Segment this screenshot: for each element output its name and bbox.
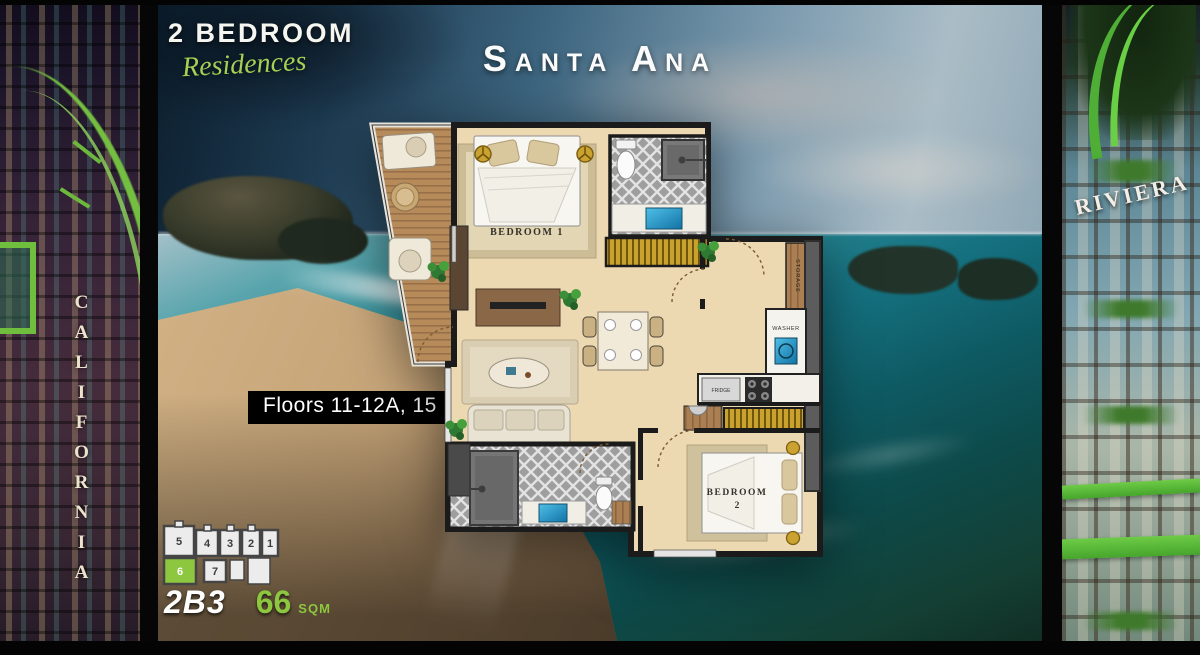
balcony-hedge: [1062, 612, 1200, 630]
keyplan-unit-label: 1: [267, 538, 273, 550]
frame-bar: [0, 641, 1200, 655]
tower-name-california: CALIFORNIA: [70, 292, 92, 637]
rock: [848, 246, 958, 294]
kitchen: FRIDGE: [698, 374, 820, 406]
fridge-label: FRIDGE: [712, 388, 732, 394]
chair: [650, 346, 663, 366]
bedroom-2: BEDROOM 2: [687, 442, 802, 545]
keyplan-unit-label: 6: [177, 566, 183, 578]
chair: [583, 346, 596, 366]
bathroom-2: [448, 444, 633, 529]
rock: [278, 218, 368, 264]
chair: [650, 317, 663, 337]
divider: [140, 0, 158, 655]
closet: [448, 444, 470, 496]
toilet: [617, 151, 635, 179]
pillow: [782, 460, 797, 490]
shelf: [612, 501, 631, 524]
tower-photo-riviera: RIVIERA: [1062, 0, 1200, 655]
bedroom2-number: 2: [735, 501, 740, 511]
window: [654, 550, 716, 557]
sliding-door: [452, 226, 456, 262]
sconce-icon: [787, 442, 800, 455]
tower-photo-california: CALIFORNIA: [0, 0, 140, 655]
pillow: [782, 494, 797, 524]
frame-bar: [0, 0, 1200, 5]
bedroom2-label: BEDROOM: [707, 488, 768, 498]
keyplan-unit-label: 2: [248, 538, 254, 550]
divider: [1042, 0, 1062, 655]
pillow: [526, 140, 559, 167]
floorplan-diagram: BEDROOM 1 STORAGE WASHER: [356, 122, 826, 562]
bedroom1-label: BEDROOM 1: [490, 227, 564, 238]
green-band: [1062, 535, 1200, 560]
keyplan-unit-label: 5: [176, 536, 182, 548]
unit-info-row: 2B3 66 sqm: [164, 584, 331, 621]
storage-label: STORAGE: [794, 259, 800, 293]
keyplan-unit-label: 4: [204, 538, 211, 550]
unit-code: 2B3: [164, 584, 226, 621]
toilet: [596, 486, 612, 510]
unit-area-value: 66: [256, 584, 292, 621]
keyplan-unit-label: 7: [212, 566, 218, 578]
dining-table: [598, 312, 648, 370]
unit-area-unit: sqm: [298, 597, 331, 618]
sink: [646, 208, 682, 229]
lounge-pillow: [406, 137, 426, 157]
keyplan-diagram: 5 4 3 2 1 6 7: [160, 518, 280, 588]
brochure-page: CALIFORNIA RIVIERA 2 BEDROOM Residences …: [0, 0, 1200, 655]
sconce-icon: [787, 532, 800, 545]
wardrobe-gold: [606, 238, 708, 266]
keyplan-unit-label: 3: [227, 538, 233, 550]
green-band: [1062, 478, 1200, 499]
washer-label: WASHER: [772, 326, 800, 332]
rock: [958, 258, 1038, 300]
coffee-table: [489, 358, 549, 388]
chair: [583, 317, 596, 337]
exterior-wall: [805, 241, 820, 491]
balcony-hedge: [1062, 300, 1200, 318]
balcony-hedge: [1062, 406, 1200, 424]
page-title: Santa Ana: [158, 38, 1042, 80]
green-frame-balcony: [0, 242, 36, 334]
sink: [539, 504, 567, 522]
bathroom-1: [610, 136, 708, 236]
